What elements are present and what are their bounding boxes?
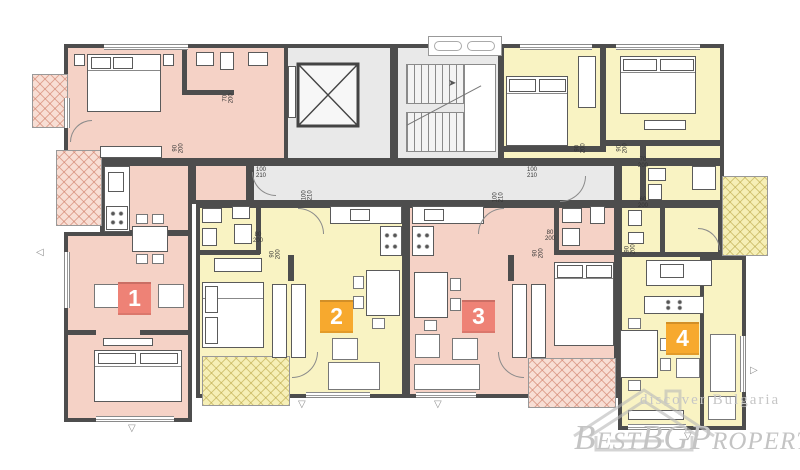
pillow <box>539 79 566 92</box>
roof-box-inner-left <box>434 41 462 51</box>
window-apt1-left-upper <box>64 98 70 128</box>
dimension-label: 90 200 <box>270 249 283 259</box>
apartment2-number-badge: 2 <box>320 300 353 333</box>
pillow <box>140 353 178 364</box>
elevator-shaft-icon <box>296 62 360 128</box>
kitchen-sink-apartment2 <box>350 209 370 221</box>
wall-apt1-bath <box>182 44 187 94</box>
chair <box>372 318 385 329</box>
window-apt1-left-lower <box>64 252 70 308</box>
toilet-apartment2-bath <box>202 228 217 246</box>
tv-unit-apartment3 <box>512 284 527 358</box>
cabinet-apartment2-bath <box>232 206 250 219</box>
stair-direction-arrow: ➤ <box>448 78 456 89</box>
tv-unit-apartment2b <box>291 284 306 358</box>
window-apt3-bottom <box>416 392 476 398</box>
chair <box>152 214 164 224</box>
wall-apt4-wc-v <box>660 204 665 254</box>
wardrobe-apartment2 <box>214 258 262 272</box>
floor-plan: ➤ <box>0 0 800 470</box>
wall-apt2-bath-v <box>256 204 261 254</box>
chair <box>450 278 461 291</box>
window-apt1-bottom <box>96 416 174 422</box>
cabinet-apartment1-bath <box>248 52 268 66</box>
wardrobe-apartment4-bed1 <box>578 56 596 108</box>
wall-apt4-bedroom-divider <box>600 44 606 146</box>
ottoman <box>676 358 700 378</box>
chair <box>424 320 437 331</box>
tv-unit-apartment3b <box>531 284 546 358</box>
apartment1-entry-hall <box>192 162 250 204</box>
chair <box>136 254 148 264</box>
kitchen-island-apartment4 <box>644 296 704 314</box>
wardrobe-apartment1-bedroom2 <box>103 338 153 346</box>
watermark-tagline: discover Bulgaria <box>640 392 780 409</box>
apartment3-number-badge: 3 <box>462 300 495 333</box>
marker-triangle-bottom-apt2: ▽ <box>298 400 306 410</box>
sofa-apartment2 <box>328 362 380 390</box>
marker-triangle-left-lower: ◁ <box>36 248 44 258</box>
wall-apt2-bedroom-stub <box>288 255 294 281</box>
stair-flight-lower <box>406 112 464 152</box>
dimension-label: 60 200 <box>638 197 648 210</box>
balcony-apartment1-upper <box>32 74 68 128</box>
dimension-label: 90 200 <box>617 143 630 153</box>
ottoman <box>332 338 358 360</box>
washer-apartment2-bath <box>234 224 252 244</box>
dimension-label: 80 200 <box>545 230 555 243</box>
stove-apartment1 <box>106 206 128 230</box>
terrace-apartment4 <box>722 176 768 256</box>
dimension-label: 90 200 <box>533 248 546 258</box>
sink-apartment3-bath <box>562 208 582 223</box>
dining-table-apartment2 <box>366 270 400 316</box>
pillow <box>509 79 536 92</box>
dining-table-apartment3 <box>414 272 448 318</box>
roof-box-above-stairs <box>428 36 502 56</box>
watermark-brand: BestBGProperties <box>574 418 800 458</box>
elevator-equipment <box>288 66 296 118</box>
chair <box>353 276 364 289</box>
sink-apartment4-bath <box>648 168 666 181</box>
kitchen-sink-apartment4 <box>660 264 684 278</box>
apartment1-number-badge: 1 <box>118 282 151 315</box>
sink-apartment4-wc <box>628 232 644 244</box>
dimension-label: 100 210 <box>493 192 506 202</box>
marker-triangle-bottom-apt1: ▽ <box>128 424 136 434</box>
dining-table-apartment4 <box>620 330 658 378</box>
stove-apartment2 <box>380 226 402 256</box>
kitchen-counter-apartment3 <box>412 206 484 224</box>
wall-apt2-bath-h <box>196 250 260 255</box>
dimension-label: 90 200 <box>575 143 588 153</box>
chair <box>660 358 671 371</box>
wardrobe-apartment1 <box>100 146 162 158</box>
wall-apt4-bath-v <box>640 146 646 204</box>
armchair <box>415 334 440 358</box>
pillow <box>113 57 133 69</box>
wall-apt3-bath-v <box>554 204 559 254</box>
pillow <box>205 286 218 313</box>
apartment4-number-badge: 4 <box>666 322 699 355</box>
dimension-label: 100 210 <box>302 190 315 200</box>
toilet-apartment1-bath <box>220 52 234 70</box>
kitchen-sink-apartment1 <box>108 172 124 192</box>
nightstand <box>74 54 85 66</box>
sofa-apartment3 <box>414 364 480 390</box>
tv-unit-apartment2 <box>272 284 287 358</box>
dimension-label: 70 200 <box>638 157 648 170</box>
chair <box>628 318 641 329</box>
chair <box>353 296 364 309</box>
chair <box>136 214 148 224</box>
nightstand <box>163 54 174 66</box>
shower-apartment4-bath <box>692 166 716 190</box>
dimension-label: 70 200 <box>223 93 236 103</box>
toilet-apartment4-wc <box>628 210 642 226</box>
dimension-label: 100 210 <box>527 167 537 180</box>
toilet-apartment3-bath <box>590 206 605 224</box>
window-apt2-bottom <box>306 392 370 398</box>
sink-apartment2-bath <box>202 208 222 223</box>
dimension-label: 80 200 <box>253 232 263 245</box>
dimension-label: 90 200 <box>625 244 638 254</box>
marker-triangle-right-apt4: ▷ <box>750 366 758 376</box>
marker-triangle-bottom-apt3: ▽ <box>434 400 442 410</box>
balcony-apartment1-lower <box>56 150 102 226</box>
wall-apt1-bedroom2b <box>140 330 192 335</box>
dining-table-apartment1 <box>132 226 168 252</box>
bench-apartment4 <box>644 120 686 130</box>
window-apt1-top <box>104 44 188 50</box>
chair <box>152 254 164 264</box>
balcony-apartment2 <box>202 356 290 406</box>
dimension-label: 90 200 <box>173 143 186 153</box>
pillow <box>91 57 111 69</box>
sink-apartment1-bath <box>196 52 214 66</box>
ottoman <box>452 338 478 360</box>
roof-box-inner-right <box>467 41 495 51</box>
wall-apt3-bath-h <box>554 250 618 255</box>
wall-apt4-hall-h <box>500 146 606 152</box>
pillow <box>98 353 136 364</box>
dimension-label: 100 210 <box>256 167 266 180</box>
window-apt4-bed1-top <box>520 44 592 50</box>
toilet-apartment4-bath <box>648 184 662 200</box>
pillow <box>586 265 612 278</box>
pillow <box>557 265 583 278</box>
pillow <box>623 59 657 71</box>
pillow <box>205 317 218 344</box>
washer-apartment3-bath <box>562 228 580 246</box>
armchair <box>94 284 120 308</box>
wall-apt1-bedroom2 <box>64 330 96 335</box>
stove-apartment3 <box>412 226 434 256</box>
pillow <box>660 59 694 71</box>
window-apt4-bed2-top <box>616 44 700 50</box>
stair-landing <box>464 64 496 152</box>
wall-apt3-bedroom-stub <box>508 255 514 281</box>
armchair <box>158 284 184 308</box>
wall-core-divider <box>390 44 396 162</box>
chair <box>450 298 461 311</box>
kitchen-sink-apartment3 <box>424 209 444 221</box>
